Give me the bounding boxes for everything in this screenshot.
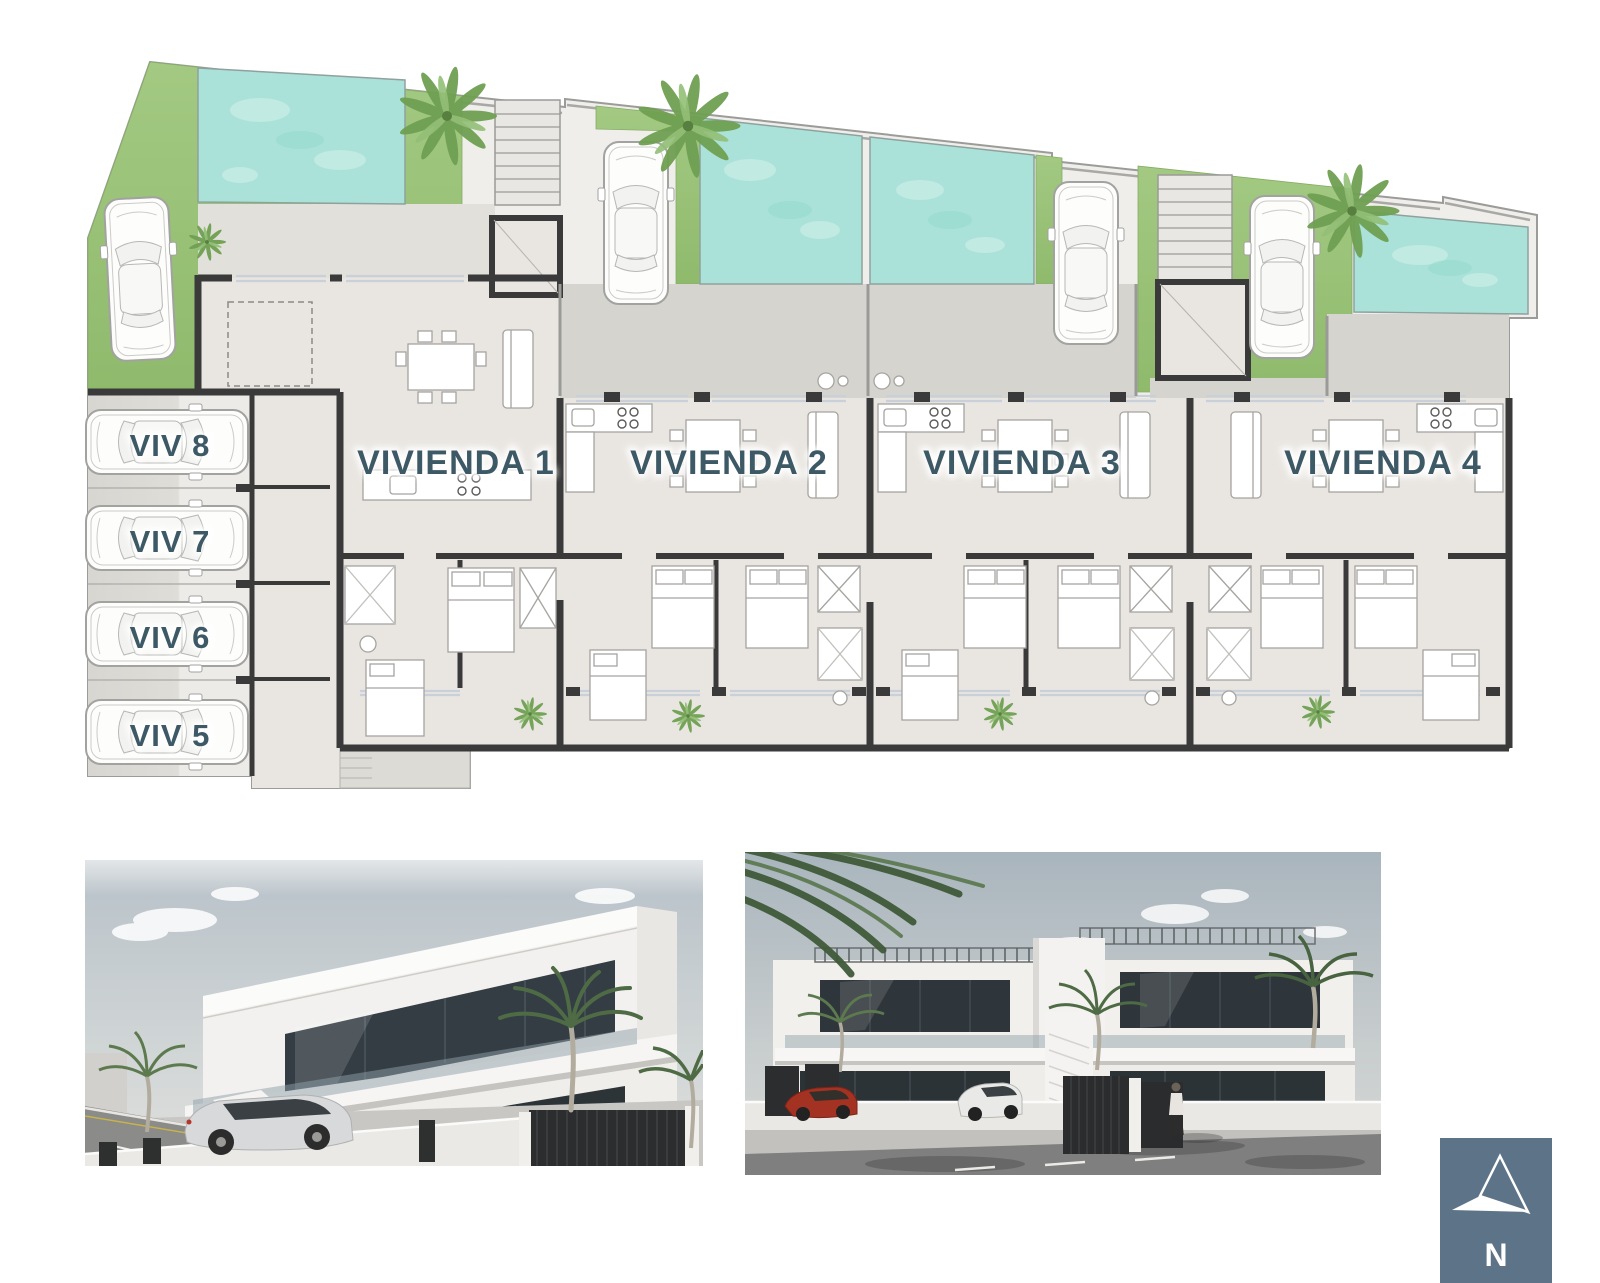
north-arrow-icon xyxy=(1452,1156,1528,1212)
parking-label-viv-8: VIV 8 xyxy=(130,428,211,463)
car-icon xyxy=(1048,182,1124,344)
parking-label-viv-7: VIV 7 xyxy=(130,524,211,559)
stairs-block-left xyxy=(492,100,560,295)
car-icon xyxy=(1244,196,1320,358)
unit-label-vivienda-1: VIVIENDA 1 xyxy=(357,444,555,482)
unit-label-vivienda-4: VIVIENDA 4 xyxy=(1284,444,1482,482)
pool-vivienda-3 xyxy=(870,137,1034,284)
north-compass: N xyxy=(1440,1138,1552,1283)
car-icon xyxy=(98,196,182,362)
parking-label-viv-6: VIV 6 xyxy=(130,620,211,655)
walkway xyxy=(198,204,495,278)
render-top-margin xyxy=(85,848,703,860)
brochure-page: VIVIENDA 1 VIVIENDA 1 VIVIENDA 2 VIVIEND… xyxy=(0,0,1600,1283)
exterior-render-left xyxy=(85,848,703,1166)
pool-vivienda-2 xyxy=(700,118,862,284)
floor-plan: VIVIENDA 1 VIVIENDA 1 VIVIENDA 2 VIVIEND… xyxy=(0,0,1600,800)
parking-label-viv-5: VIV 5 xyxy=(130,718,211,753)
unit-label-vivienda-2: VIVIENDA 2 xyxy=(630,444,828,482)
car-icon xyxy=(185,1095,353,1155)
exterior-render-right xyxy=(745,852,1381,1175)
unit-label-vivienda-3: VIVIENDA 3 xyxy=(923,444,1121,482)
north-label: N xyxy=(1484,1237,1507,1273)
